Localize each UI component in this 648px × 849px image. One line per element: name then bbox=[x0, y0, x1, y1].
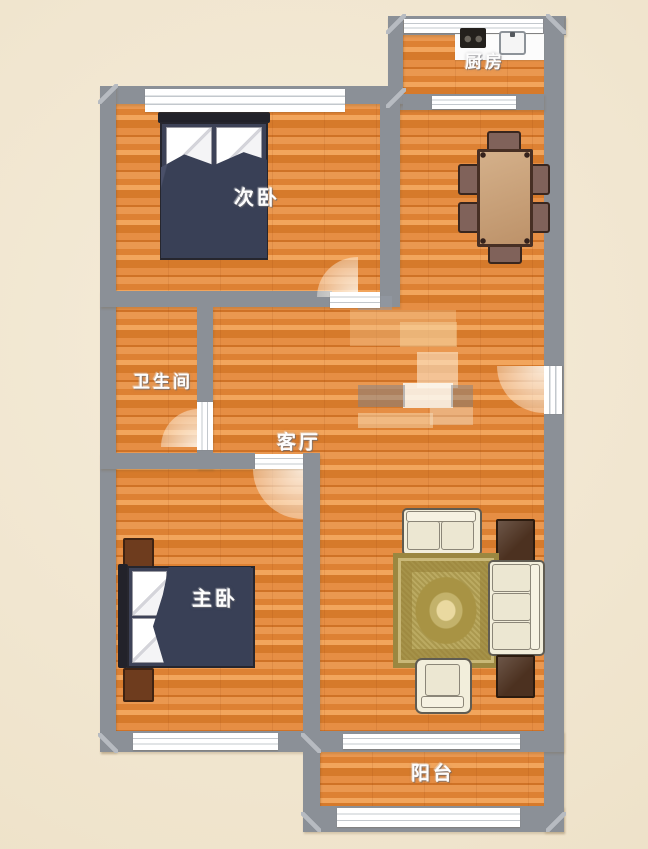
living-room-label: 客厅 bbox=[277, 428, 321, 455]
sofa-cushion bbox=[492, 622, 531, 650]
left-exterior-wall bbox=[100, 86, 116, 752]
master-bedroom-right-wall bbox=[303, 453, 320, 752]
area-rug bbox=[393, 553, 499, 668]
master-bedroom-window bbox=[133, 733, 278, 750]
armchair-seat bbox=[425, 664, 460, 696]
kitchen-pass-window bbox=[432, 96, 516, 109]
master-bedroom-bed bbox=[118, 564, 255, 668]
sofa-cushion bbox=[441, 521, 474, 550]
pixelated-watermark bbox=[358, 385, 405, 407]
balcony-exterior-window bbox=[337, 808, 520, 827]
bedroom2-door-leaf bbox=[330, 292, 380, 308]
floor-plan: 厨房 次卧 卫生间 客厅 主卧 阳台 bbox=[0, 0, 648, 849]
pixelated-watermark bbox=[451, 385, 473, 407]
entrance-door-leaf bbox=[544, 366, 562, 414]
pixelated-watermark bbox=[403, 383, 453, 408]
right-exterior-wall bbox=[544, 16, 564, 832]
bedroom2-bottom-wall bbox=[100, 291, 332, 307]
bathroom-label: 卫生间 bbox=[133, 368, 193, 393]
bed-frame bbox=[127, 566, 255, 668]
loveseat-sofa bbox=[402, 508, 482, 556]
pixelated-watermark bbox=[358, 413, 433, 428]
bedroom2-dining-wall bbox=[380, 102, 400, 307]
pixelated-watermark bbox=[400, 322, 457, 347]
bathroom-right-wall-upper bbox=[197, 307, 213, 402]
balcony-door-window bbox=[343, 734, 520, 749]
master-bedroom-door-leaf bbox=[255, 454, 303, 469]
bedroom2-window bbox=[145, 89, 345, 112]
balcony-label: 阳台 bbox=[411, 759, 455, 786]
side-table bbox=[496, 655, 535, 698]
faucet-icon bbox=[510, 32, 515, 37]
sofa-cushion bbox=[492, 564, 531, 592]
stove-icon bbox=[460, 28, 486, 48]
master-bedroom-label: 主卧 bbox=[192, 583, 238, 612]
nightstand bbox=[123, 668, 154, 702]
secondary-bedroom-label: 次卧 bbox=[234, 182, 280, 211]
sofa-cushion bbox=[407, 521, 440, 550]
master-bedroom-top-wall bbox=[100, 453, 255, 469]
three-seat-sofa bbox=[488, 560, 545, 656]
bathroom-door-leaf bbox=[197, 402, 213, 450]
sofa-cushion bbox=[492, 593, 531, 621]
pixelated-watermark bbox=[430, 407, 473, 425]
armchair bbox=[415, 658, 472, 714]
sofa-backrest bbox=[530, 564, 540, 650]
kitchen-label: 厨房 bbox=[465, 48, 505, 73]
dining-table bbox=[477, 149, 533, 247]
armchair-backrest bbox=[421, 696, 464, 708]
side-table bbox=[496, 519, 535, 562]
